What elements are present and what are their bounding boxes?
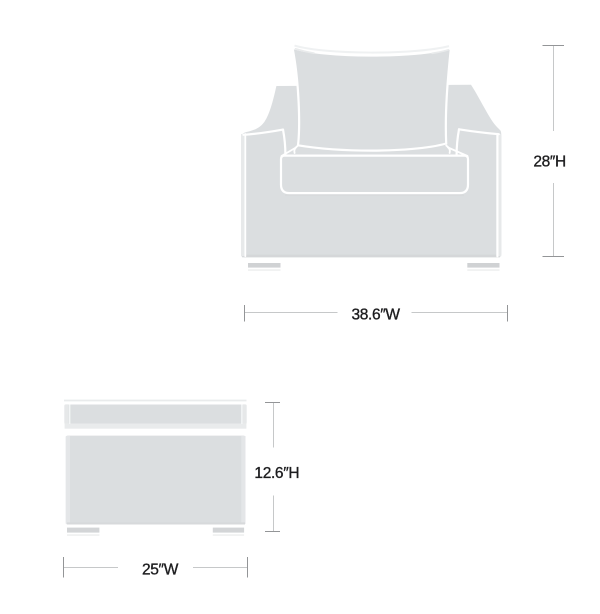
svg-text:38.6″W: 38.6″W — [352, 306, 401, 323]
svg-text:25″W: 25″W — [142, 561, 179, 578]
svg-text:28″H: 28″H — [533, 153, 566, 170]
svg-text:12.6″H: 12.6″H — [254, 465, 299, 482]
